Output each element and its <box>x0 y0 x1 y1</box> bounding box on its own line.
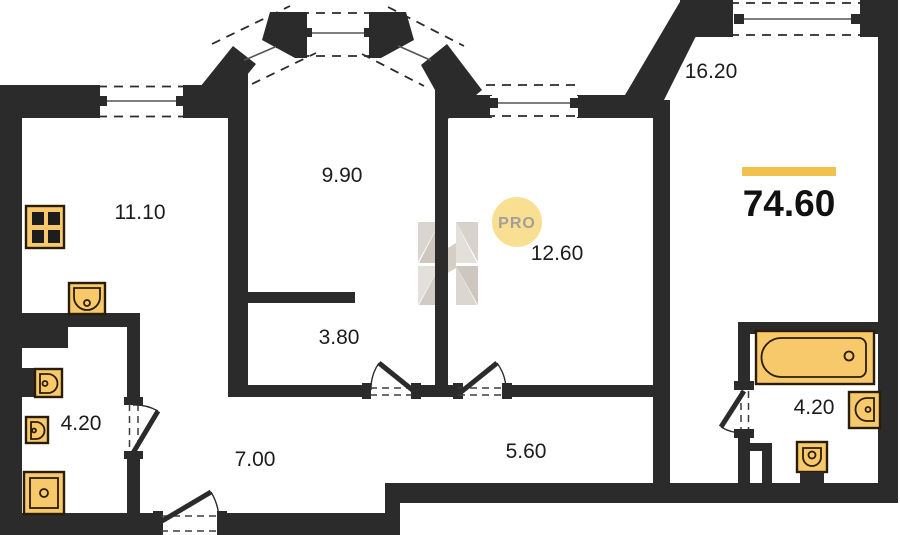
room-label-bathroom-right: 4.20 <box>794 396 835 419</box>
room-label-bathroom-left: 4.20 <box>61 412 102 435</box>
room-label-kitchen: 11.10 <box>115 201 166 224</box>
window-kitchen <box>97 86 186 117</box>
floor-plan-canvas: PRO 11.10 9.90 16.20 12.60 3.80 4.20 7.0… <box>0 0 900 535</box>
kitchen-sink-icon <box>69 283 105 314</box>
door-bathroom-right <box>721 391 749 433</box>
room-label-bay-room: 9.90 <box>322 164 363 187</box>
door-bedroom <box>458 363 506 395</box>
pro-badge-label: PRO <box>498 215 536 232</box>
shower-tray-icon <box>24 472 64 514</box>
stove-icon <box>26 206 64 248</box>
room-label-wardrobe: 3.80 <box>319 326 360 349</box>
bathtub-icon <box>756 331 874 384</box>
door-bathroom-left <box>130 404 159 453</box>
floor-plan: PRO 11.10 9.90 16.20 12.60 3.80 4.20 7.0… <box>0 0 900 535</box>
toilet-left-icon <box>26 417 48 443</box>
room-label-bedroom: 12.60 <box>531 242 584 265</box>
door-wardrobe <box>370 363 418 395</box>
total-area: 74.60 <box>742 167 836 224</box>
total-area-value: 74.60 <box>743 183 836 224</box>
pro-badge: PRO <box>492 197 542 247</box>
window-bedroom <box>486 85 580 117</box>
total-area-accent-bar <box>742 167 836 176</box>
toilet-right-icon <box>797 442 827 485</box>
washbasin-left-icon <box>35 369 62 397</box>
room-label-hallway: 7.00 <box>235 448 276 471</box>
room-label-living-room: 16.20 <box>685 60 738 83</box>
bay-window-center <box>300 13 376 56</box>
room-label-corridor: 5.60 <box>506 440 547 463</box>
window-living-room <box>730 2 862 35</box>
door-entrance <box>161 492 219 535</box>
washbasin-right-icon <box>849 392 880 428</box>
